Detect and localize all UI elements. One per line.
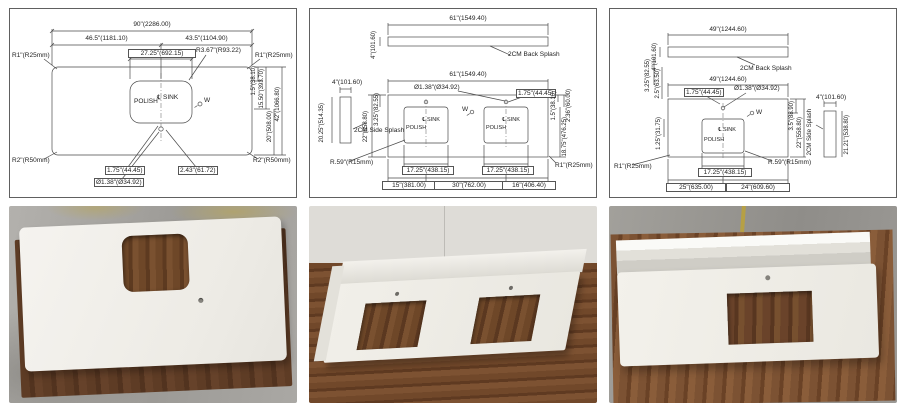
- faucet-w-label: W: [204, 97, 210, 104]
- backsplash-callout: 2CM Back Splash: [740, 65, 792, 72]
- countertop-deck: [617, 263, 879, 367]
- dim-left-to-sink-center: 46.5"(1181.10): [52, 35, 161, 42]
- dim-faucet-hole: Ø1.38"(Ø34.92): [734, 85, 780, 92]
- dim-overall-width: 49"(1244.60): [668, 76, 788, 83]
- sink-cutout-hole: [122, 233, 190, 292]
- sink-cutout-hole-right: [471, 295, 540, 344]
- dim-sink-corner-radius: R3.67"(R93.22): [196, 47, 241, 54]
- photo-90in-countertop: [9, 206, 297, 403]
- dim-back-to-cutout: 3.25"(82.55): [374, 93, 381, 126]
- dim-sink-width-left: 17.25"(438.15): [402, 166, 454, 175]
- dim-sidesplash-width: 4"(101.60): [816, 94, 846, 101]
- dim-radius-bottom-left: R2"(R50mm): [12, 157, 50, 164]
- sink-polish-label: POLISH: [704, 137, 724, 143]
- vanity-top: [323, 260, 582, 362]
- dim-right-4: 42"(1066.80): [275, 87, 282, 122]
- dim-sink-width: 17.25"(438.15): [698, 168, 752, 177]
- faucet-w-label: W: [462, 106, 468, 113]
- sink-centerline-label: ℄ SINK: [157, 94, 178, 101]
- dim-sink-width-right: 17.25"(438.15): [482, 166, 534, 175]
- vanity-top: [616, 231, 879, 366]
- dim-radius-top-right: R1"(R25mm): [255, 52, 293, 59]
- dim-radius-corner: R1"(R25mm): [555, 162, 593, 169]
- dim-radius-sink: R.59"(R15mm): [330, 159, 373, 166]
- drawing-panel-90in: 90"(2286.00) 46.5"(1181.10) 43.5"(1104.9…: [9, 8, 297, 198]
- dim-backsplash-width: 49"(1244.60): [668, 26, 788, 33]
- dim-faucet-offset: 1.75"(44.45): [516, 89, 556, 98]
- drawing-panel-61in-double: 61"(1549.40) 4"(101.60) 2CM Back Splash …: [309, 8, 597, 198]
- dim-radius-top-left: R1"(R25mm): [12, 52, 50, 59]
- dim-right-1: 3.5"(88.90): [789, 101, 796, 130]
- dim-overall-width: 90"(2286.00): [52, 21, 252, 28]
- sink-centerline-label-right: ℄ SINK: [502, 117, 520, 123]
- dim-left-1: 3.25"(82.55): [645, 59, 652, 92]
- sink-centerline-label-left: ℄ SINK: [422, 117, 440, 123]
- dim-backsplash-height: 4"(101.60): [371, 31, 378, 59]
- faucet-hole-left: [395, 292, 400, 296]
- countertop-slab: [19, 216, 287, 371]
- sidesplash-callout: 2CM Side Splash: [807, 109, 814, 155]
- dim-bottom-center: 30"(762.00): [434, 181, 504, 190]
- sink-cutout-hole-left: [357, 301, 426, 350]
- dim-faucet-offset: 1.75"(44.45): [684, 88, 724, 97]
- dim-sidesplash-height: 20.25"(514.35): [319, 103, 326, 143]
- dim-radius-bottom-right: R2"(R50mm): [253, 157, 291, 164]
- wall-seam: [444, 206, 445, 263]
- dim-radius-sink: R.59"(R15mm): [768, 159, 811, 166]
- faucet-hole-right: [508, 286, 513, 290]
- drawing-panel-49in: 49"(1244.60) 4"(101.60) 2CM Back Splash …: [609, 8, 897, 198]
- dim-backsplash-width: 61"(1549.40): [388, 15, 548, 22]
- dim-sink-center-to-right: 43.5"(1104.90): [161, 35, 252, 42]
- sink-cutout-hole: [726, 290, 813, 344]
- sidesplash-callout: 2CM Side Splash: [354, 127, 404, 134]
- dim-right-1: 1.5"(38.10): [551, 91, 558, 120]
- dim-faucet-to-sink: 2.43"(61.72): [178, 166, 218, 175]
- dim-bottom-right: 16"(406.40): [502, 181, 556, 190]
- faucet-hole: [198, 297, 203, 302]
- photo-49in-vanity: [609, 206, 897, 403]
- floor-paint-line: [741, 206, 747, 232]
- dim-right-1: 1.5"(38.10): [251, 66, 258, 95]
- dim-faucet-offset: 1.75"(44.45): [105, 166, 145, 175]
- dim-faucet-hole: Ø1.38"(Ø34.92): [414, 84, 460, 91]
- dim-backsplash-height: 4"(101.60): [652, 43, 659, 71]
- dim-radius-corner: R1"(R25mm): [614, 163, 652, 170]
- dim-bottom-left: 25"(635.00): [666, 183, 726, 192]
- dim-overall-width: 61"(1549.40): [388, 71, 548, 78]
- dim-right-3: 18.75"(476.25): [562, 117, 569, 157]
- sink-polish-label-right: POLISH: [486, 125, 506, 131]
- dim-left-2: 2.5"(63.50): [655, 69, 662, 98]
- sink-polish-label-left: POLISH: [406, 125, 426, 131]
- faucet-hole: [765, 275, 770, 280]
- dim-sidesplash-width: 4"(101.60): [332, 79, 362, 86]
- dim-right-3: 20"(508.00): [267, 111, 274, 142]
- dim-bottom-left: 15"(381.00): [382, 181, 436, 190]
- dim-left-3: 1.25"(31.75): [656, 117, 663, 150]
- dim-depth: 22"(558.80): [363, 111, 370, 142]
- sink-polish-label: POLISH: [134, 98, 158, 105]
- dim-faucet-hole: Ø1.38"(Ø34.92): [94, 178, 144, 187]
- dim-right-2: 15.50"(393.70): [259, 69, 266, 109]
- dim-bottom-right: 24"(609.60): [726, 183, 790, 192]
- dim-sink-width: 27.25"(692.15): [128, 49, 196, 58]
- dim-sidesplash-height: 21.21"(538.80): [844, 115, 851, 155]
- dimension-linework-49in: [610, 9, 896, 197]
- faucet-w-label: W: [756, 109, 762, 116]
- spec-sheet: 90"(2286.00) 46.5"(1181.10) 43.5"(1104.9…: [0, 0, 918, 413]
- countertop-deck: [323, 271, 580, 363]
- sink-centerline-label: ℄ SINK: [718, 127, 736, 133]
- countertop-outline: [52, 67, 252, 155]
- photo-61in-double-vanity: [309, 206, 597, 403]
- dim-right-2: 22"(558.80): [797, 117, 804, 148]
- backsplash-callout: 2CM Back Splash: [508, 51, 560, 58]
